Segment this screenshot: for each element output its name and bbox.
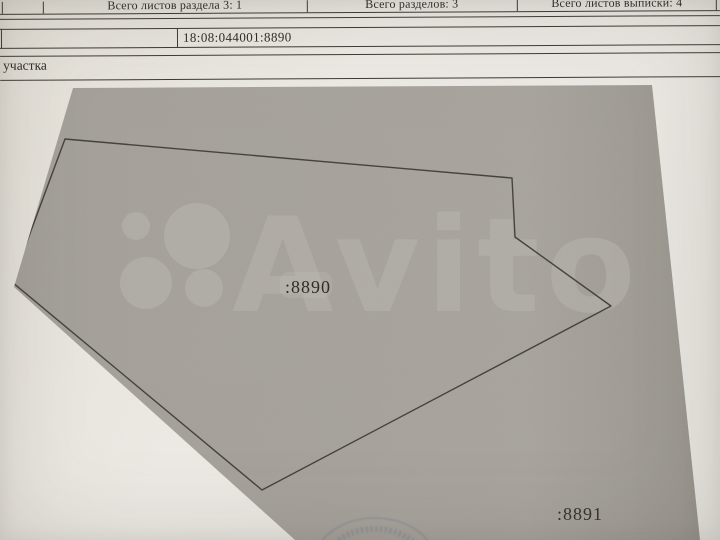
header-cell-total-sheets-of-section: Всего листов раздела 3: 1 (43, 0, 307, 13)
table-border-line (1, 28, 2, 48)
header-cell-total-sections: Всего разделов: 3 (307, 0, 517, 11)
table-border-line (177, 27, 178, 47)
table-border-line (0, 52, 720, 57)
table-border-line (2, 2, 3, 14)
avito-watermark-text: Avito (232, 189, 642, 342)
header-cell-total-extract-sheets: Всего листов выписки: 4 (517, 0, 717, 10)
parcel-8891-label: :8891 (557, 504, 603, 524)
plan-caption-fragment: участка (3, 58, 47, 73)
document-photo: { "document": { "header_row": [ { "label… (0, 0, 720, 540)
table-border-line (0, 44, 720, 49)
cadastral-number: 18:08:044001:8890 (183, 30, 292, 45)
parcel-8890-label: :8890 (285, 277, 331, 297)
extract-header-table: Всего листов раздела 3: 1 Всего разделов… (0, 0, 720, 92)
table-border-line (0, 76, 720, 81)
table-border-line (0, 25, 720, 30)
table-border-line (0, 15, 720, 20)
